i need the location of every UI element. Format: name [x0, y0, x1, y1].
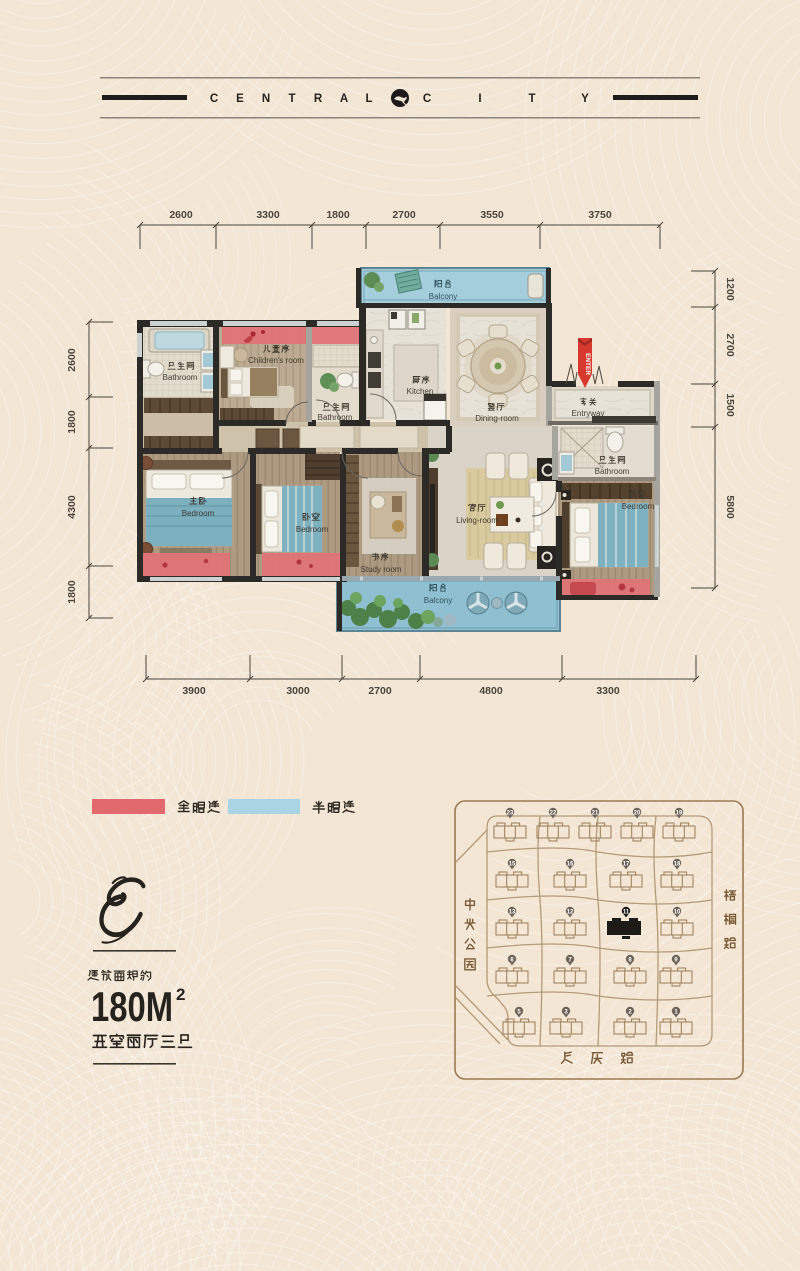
svg-text:Kitchen: Kitchen [407, 387, 434, 396]
svg-text:T: T [528, 93, 535, 105]
svg-text:4800: 4800 [479, 685, 503, 697]
svg-text:12: 12 [567, 910, 574, 916]
svg-text:5800: 5800 [724, 495, 736, 519]
svg-text:I: I [478, 93, 481, 105]
svg-text:ENTER: ENTER [584, 353, 591, 375]
svg-text:Dining-room: Dining-room [475, 414, 519, 423]
svg-text:13: 13 [509, 910, 516, 916]
svg-text:Y: Y [581, 93, 589, 105]
svg-text:3750: 3750 [588, 209, 612, 221]
svg-text:Bathroom: Bathroom [163, 373, 198, 382]
svg-text:Children's room: Children's room [248, 356, 304, 365]
svg-text:Bedroom: Bedroom [296, 525, 329, 534]
svg-text:11: 11 [623, 910, 630, 916]
svg-text:Bedroom: Bedroom [182, 509, 215, 518]
svg-text:2700: 2700 [392, 209, 416, 221]
svg-text:180M: 180M [91, 983, 173, 1030]
svg-text:A: A [340, 93, 348, 105]
svg-text:Balcony: Balcony [429, 292, 457, 301]
svg-text:1500: 1500 [724, 393, 736, 417]
svg-text:Bathroom: Bathroom [595, 467, 630, 476]
svg-text:16: 16 [567, 862, 574, 868]
svg-text:N: N [262, 93, 270, 105]
svg-text:3000: 3000 [286, 685, 310, 697]
svg-text:21: 21 [592, 811, 599, 817]
svg-text:E: E [236, 93, 244, 105]
svg-text:19: 19 [676, 811, 683, 817]
svg-text:3300: 3300 [596, 685, 620, 697]
svg-text:3300: 3300 [256, 209, 280, 221]
svg-text:17: 17 [623, 862, 630, 868]
svg-text:1800: 1800 [66, 410, 78, 434]
svg-text:2600: 2600 [66, 348, 78, 372]
svg-text:C: C [210, 93, 218, 105]
svg-text:10: 10 [674, 910, 681, 916]
svg-text:18: 18 [674, 862, 681, 868]
svg-text:T: T [288, 93, 295, 105]
svg-text:3550: 3550 [480, 209, 504, 221]
svg-text:1800: 1800 [326, 209, 350, 221]
svg-text:1200: 1200 [724, 277, 736, 301]
svg-text:Balcony: Balcony [424, 596, 452, 605]
svg-text:Bedroom: Bedroom [622, 502, 655, 511]
svg-text:Living-room: Living-room [456, 516, 498, 525]
svg-text:22: 22 [550, 811, 557, 817]
svg-text:2600: 2600 [169, 209, 193, 221]
svg-text:1800: 1800 [66, 580, 78, 604]
svg-text:2700: 2700 [724, 333, 736, 357]
svg-text:C: C [423, 93, 431, 105]
svg-text:4300: 4300 [66, 495, 78, 519]
svg-text:Study room: Study room [361, 565, 402, 574]
svg-text:2700: 2700 [368, 685, 392, 697]
svg-text:23: 23 [507, 811, 514, 817]
svg-text:2: 2 [176, 985, 185, 1004]
svg-text:20: 20 [634, 811, 641, 817]
svg-text:15: 15 [509, 862, 516, 868]
svg-text:L: L [365, 93, 372, 105]
svg-text:R: R [314, 93, 323, 105]
svg-text:3900: 3900 [182, 685, 206, 697]
